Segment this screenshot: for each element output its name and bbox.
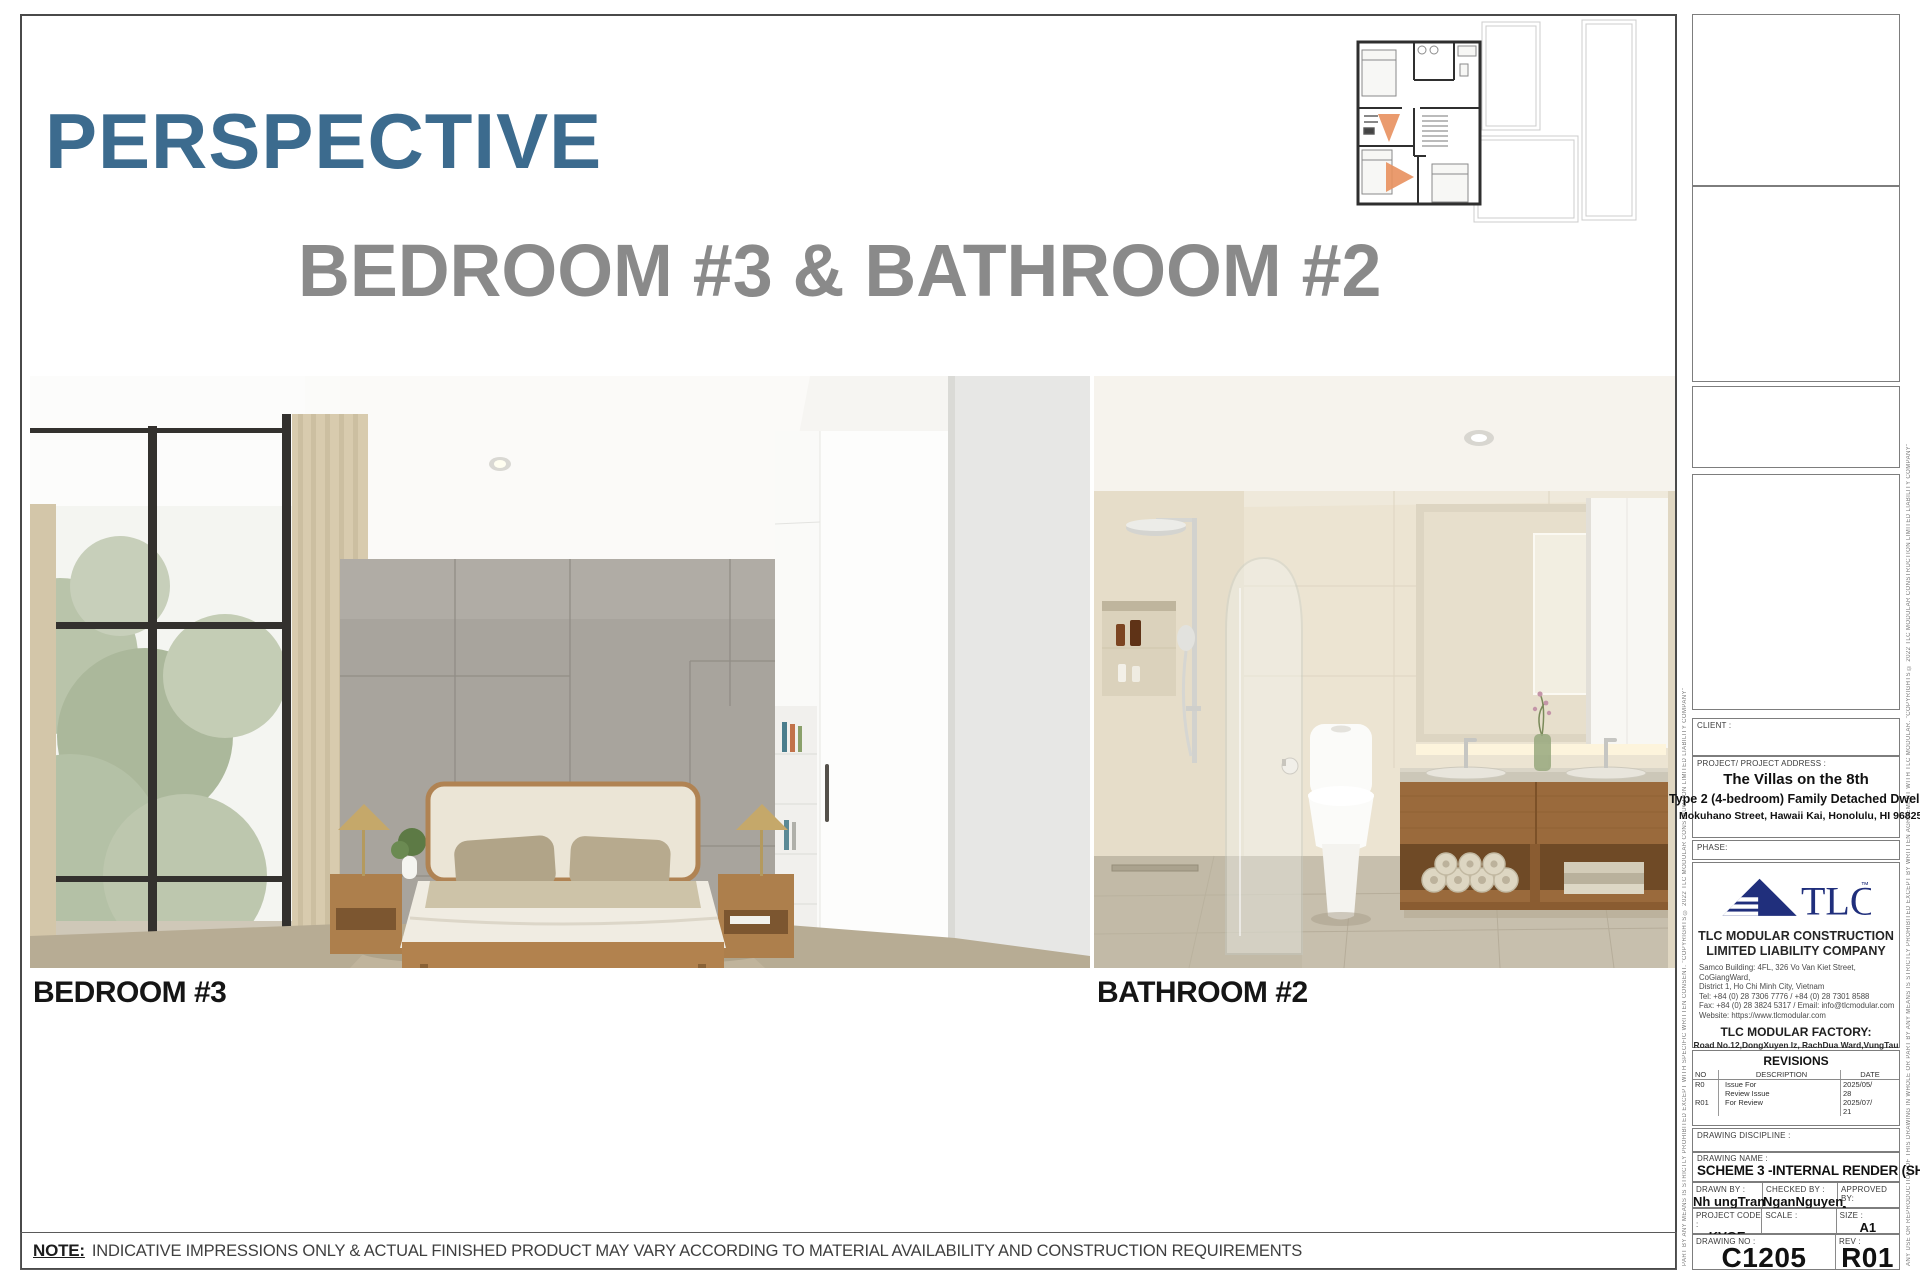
revisions-col-no: NO (1693, 1070, 1719, 1079)
revision-row: R01 For Review 2025/07/ (1693, 1098, 1899, 1107)
revisions-heading: REVISIONS (1693, 1054, 1899, 1068)
checked-by-value: NganNguyen (1763, 1194, 1837, 1209)
revision-no: R0 (1693, 1080, 1719, 1089)
tlc-logo-icon: TLC ™ (1721, 874, 1871, 922)
revisions-rows: R0 Issue For 2025/05/ Review Issue 28 R0… (1693, 1080, 1899, 1116)
project-code-cell: PROJECT CODE : KVGE (1693, 1209, 1762, 1233)
bathroom-render-image (1094, 376, 1675, 968)
company-fax: Fax: +84 (0) 28 3824 5317 / Email: info@… (1699, 1001, 1899, 1011)
company-box: TLC ™ TLC MODULAR CONSTRUCTION LIMITED L… (1692, 862, 1900, 1048)
size-cell: SIZE : A1 (1837, 1209, 1899, 1233)
titleblock-empty-box-2 (1692, 186, 1900, 382)
project-code-label: PROJECT CODE : (1693, 1209, 1761, 1229)
size-label: SIZE : (1837, 1209, 1899, 1220)
revision-description: For Review (1719, 1098, 1841, 1107)
checked-by-label: CHECKED BY : (1763, 1183, 1837, 1194)
bathroom-scene (1094, 376, 1675, 968)
factory-heading: TLC MODULAR FACTORY: (1693, 1025, 1899, 1039)
company-address-line1: Samco Building: 4FL, 326 Vo Van Kiet Str… (1699, 963, 1899, 982)
scale-cell: SCALE : (1762, 1209, 1836, 1233)
drawing-discipline-box: DRAWING DISCIPLINE : (1692, 1128, 1900, 1152)
project-label: PROJECT/ PROJECT ADDRESS : (1693, 757, 1899, 768)
revision-date: 2025/05/ (1841, 1080, 1899, 1089)
company-name-line2: LIMITED LIABILITY COMPANY (1693, 944, 1899, 959)
drawing-name: SCHEME 3 -INTERNAL RENDER (SHEET 5) (1693, 1163, 1899, 1178)
revision-description: Issue For (1719, 1080, 1841, 1089)
drawing-no-cell: DRAWING NO : C1205 (1693, 1235, 1836, 1269)
revision-date: 28 (1841, 1089, 1899, 1098)
client-label: CLIENT : (1693, 719, 1899, 730)
revision-no (1693, 1089, 1719, 1098)
phase-label: PHASE: (1693, 841, 1899, 852)
titleblock-empty-box-1 (1692, 14, 1900, 186)
rev-cell: REV : R01 (1836, 1235, 1899, 1269)
note-label: NOTE: (33, 1241, 85, 1261)
approved-by-cell: APPROVED BY: Approver (1838, 1183, 1899, 1207)
revisions-col-description: DESCRIPTION (1719, 1070, 1841, 1079)
number-row: DRAWING NO : C1205 REV : R01 (1692, 1234, 1900, 1270)
revision-date: 2025/07/ (1841, 1098, 1899, 1107)
drawing-name-box: DRAWING NAME : SCHEME 3 -INTERNAL RENDER… (1692, 1152, 1900, 1182)
drawing-no-value: C1205 (1693, 1246, 1835, 1270)
titleblock-empty-box-4 (1692, 474, 1900, 710)
revision-date: 21 (1841, 1107, 1899, 1116)
note-text: INDICATIVE IMPRESSIONS ONLY & ACTUAL FIN… (92, 1242, 1302, 1261)
tlc-logo-tm: ™ (1861, 880, 1869, 889)
revision-description (1719, 1107, 1841, 1116)
floorplan-key-thumbnail (1356, 16, 1640, 228)
revision-row: 21 (1693, 1107, 1899, 1116)
page-title: PERSPECTIVE (45, 96, 602, 187)
company-website: Website: https://www.tlcmodular.com (1699, 1011, 1899, 1021)
scale-label: SCALE : (1762, 1209, 1835, 1220)
company-tel: Tel: +84 (0) 28 7306 7776 / +84 (0) 28 7… (1699, 992, 1899, 1002)
drawing-sheet: PERSPECTIVE BEDROOM #3 & BATHROOM #2 (0, 0, 1920, 1280)
company-address: Samco Building: 4FL, 326 Vo Van Kiet Str… (1693, 959, 1899, 1021)
checked-by-cell: CHECKED BY : NganNguyen (1763, 1183, 1838, 1207)
drawn-by-value: Nh ungTran (1693, 1194, 1762, 1209)
company-logo: TLC ™ (1693, 871, 1899, 925)
drawing-discipline-label: DRAWING DISCIPLINE : (1693, 1129, 1899, 1140)
bedroom-scene (30, 376, 1090, 968)
bathroom-label: BATHROOM #2 (1097, 976, 1308, 1010)
project-box: PROJECT/ PROJECT ADDRESS : The Villas on… (1692, 756, 1900, 838)
code-row: PROJECT CODE : KVGE SCALE : SIZE : A1 (1692, 1208, 1900, 1234)
floorplan-drawing (1356, 16, 1640, 228)
revisions-box: REVISIONS NO DESCRIPTION DATE R0 Issue F… (1692, 1050, 1900, 1126)
revision-row: Review Issue 28 (1693, 1089, 1899, 1098)
people-row: DRAWN BY : Nh ungTran CHECKED BY : NganN… (1692, 1182, 1900, 1208)
copyright-edge-text-left: PART BY ANY MEANS IS STRICTLY PROHIBITED… (1680, 18, 1692, 1266)
company-name-line1: TLC MODULAR CONSTRUCTION (1693, 929, 1899, 944)
revision-no: R01 (1693, 1098, 1719, 1107)
project-address: Mokuhano Street, Hawaii Kai, Honolulu, H… (1679, 810, 1899, 822)
titleblock-empty-box-3 (1692, 386, 1900, 468)
project-type: Type 2 (4-bedroom) Family Detached Dwell… (1669, 792, 1899, 806)
drawn-by-cell: DRAWN BY : Nh ungTran (1693, 1183, 1763, 1207)
revision-row: R0 Issue For 2025/05/ (1693, 1080, 1899, 1089)
drawn-by-label: DRAWN BY : (1693, 1183, 1762, 1194)
size-value: A1 (1837, 1220, 1899, 1235)
approved-by-label: APPROVED BY: (1838, 1183, 1899, 1203)
drawing-name-label: DRAWING NAME : (1693, 1153, 1899, 1163)
bedroom-label: BEDROOM #3 (33, 976, 226, 1010)
project-name: The Villas on the 8th (1693, 771, 1899, 788)
copyright-edge-text-right: ANY USE OR REPRODUCTION OF THIS DRAWING … (1904, 18, 1916, 1266)
revision-description: Review Issue (1719, 1089, 1841, 1098)
revisions-col-date: DATE (1841, 1070, 1899, 1079)
bedroom-render-image (30, 376, 1090, 968)
company-address-line2: District 1, Ho Chi Minh City, Vietnam (1699, 982, 1899, 992)
phase-box: PHASE: (1692, 840, 1900, 860)
note-bar: NOTE: INDICATIVE IMPRESSIONS ONLY & ACTU… (20, 1232, 1677, 1270)
client-box: CLIENT : (1692, 718, 1900, 756)
revisions-header-row: NO DESCRIPTION DATE (1693, 1070, 1899, 1080)
page-subtitle: BEDROOM #3 & BATHROOM #2 (298, 228, 1381, 313)
rev-value: R01 (1836, 1246, 1899, 1270)
revision-no (1693, 1107, 1719, 1116)
